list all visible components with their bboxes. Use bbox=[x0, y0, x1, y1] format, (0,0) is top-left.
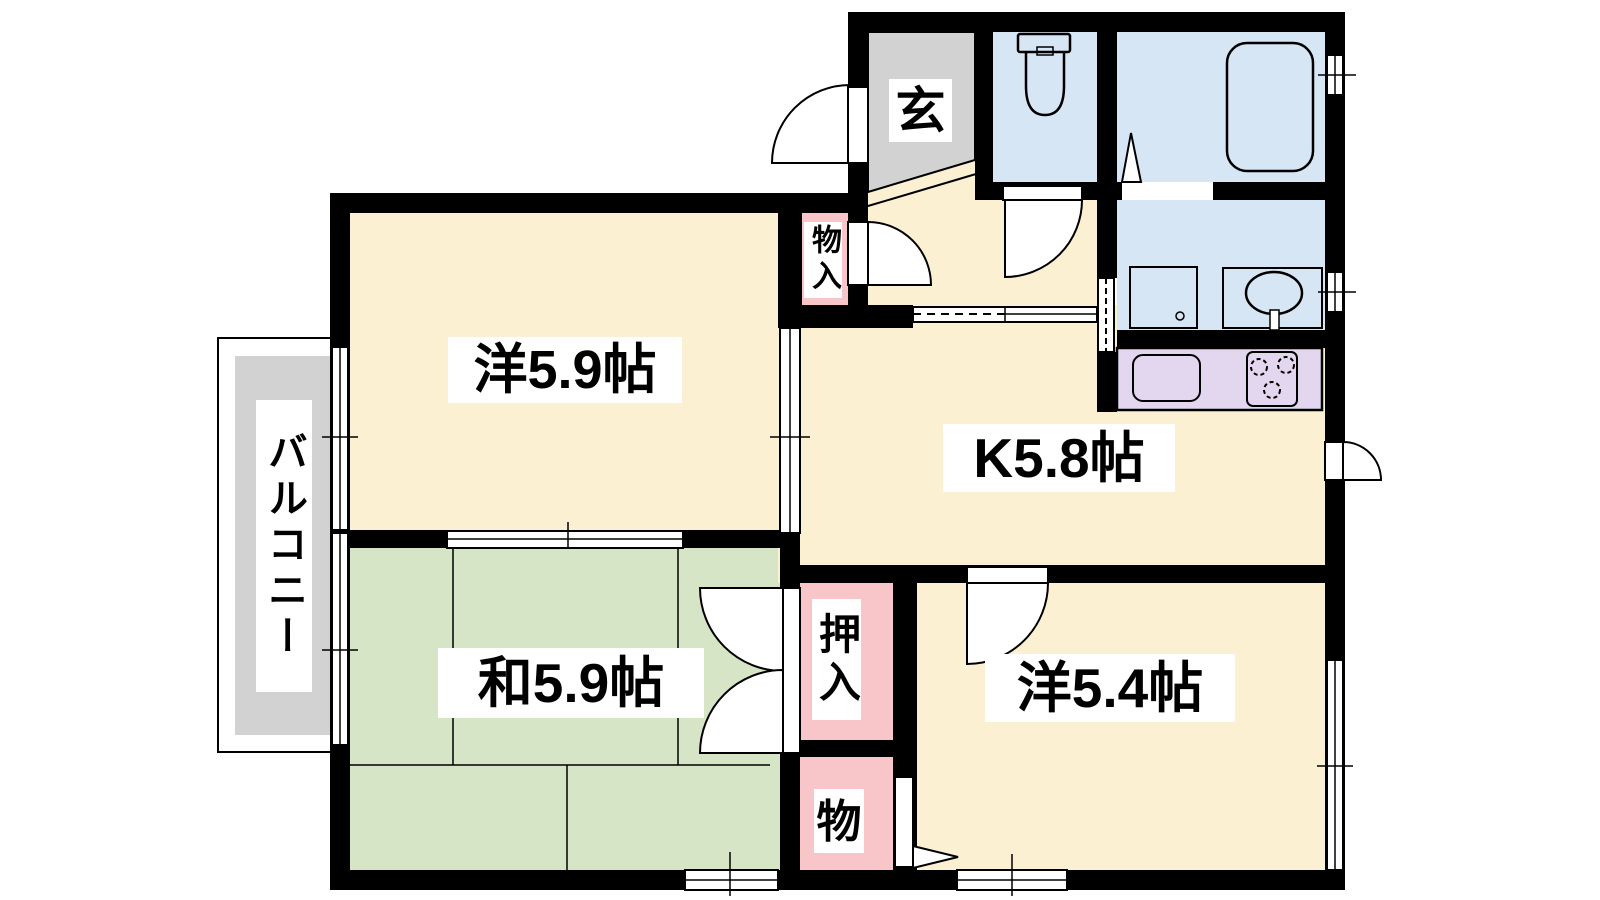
room-label-western1: 洋5.9帖 bbox=[448, 337, 682, 403]
sliding-door-hall-kitchen bbox=[913, 307, 1097, 322]
floor-plan-drawing bbox=[0, 0, 1600, 900]
bathroom-floor bbox=[1117, 32, 1325, 200]
room-label-western2: 洋5.4帖 bbox=[985, 654, 1235, 722]
kitchen-back-door bbox=[1325, 442, 1381, 480]
floor-plan: 洋5.9帖 K5.8帖 和5.9帖 洋5.4帖 玄 バルコニー 物入 押入 物 bbox=[0, 0, 1600, 900]
room-label-oshiire: 押入 bbox=[812, 599, 861, 720]
room-label-mono: 物 bbox=[814, 789, 864, 853]
room-label-kitchen: K5.8帖 bbox=[943, 424, 1175, 492]
kitchen-counter bbox=[1117, 348, 1322, 410]
sliding-door-washroom bbox=[1098, 278, 1114, 352]
room-label-balcony: バルコニー bbox=[256, 400, 312, 692]
entrance-door bbox=[772, 85, 868, 163]
room-label-closet-hall: 物入 bbox=[804, 222, 842, 298]
bath-door-opening bbox=[1122, 182, 1213, 200]
room-label-japanese: 和5.9帖 bbox=[438, 648, 704, 718]
washroom-floor bbox=[1117, 200, 1325, 348]
room-label-entrance: 玄 bbox=[889, 79, 952, 142]
